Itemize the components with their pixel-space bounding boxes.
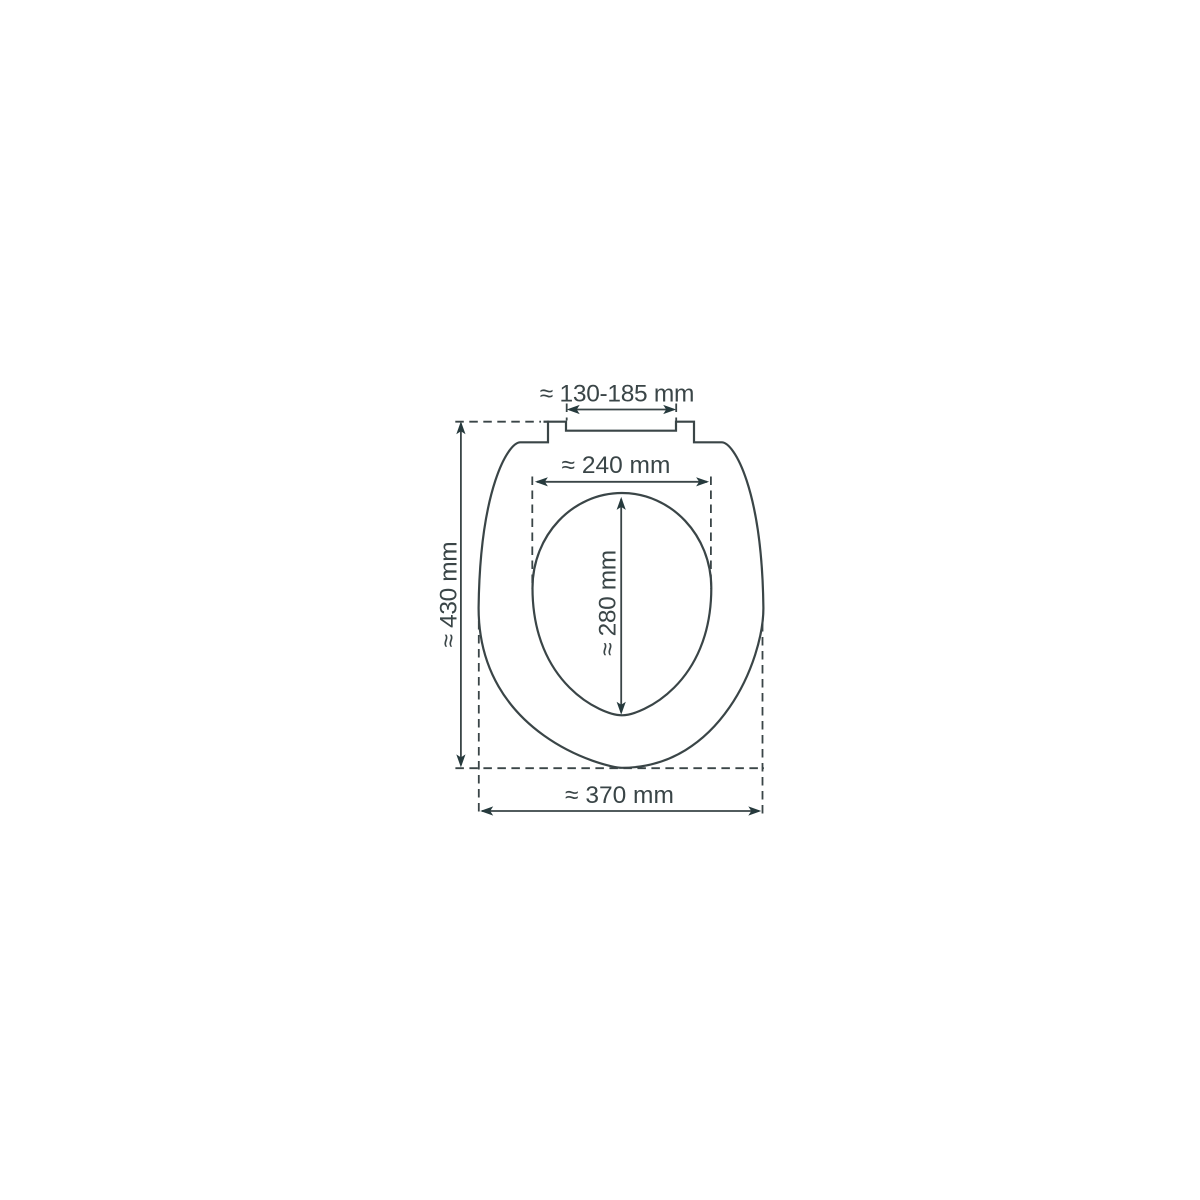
svg-text:≈ 430 mm: ≈ 430 mm [436, 542, 463, 648]
svg-text:≈ 240 mm: ≈ 240 mm [562, 452, 671, 479]
svg-text:≈ 280 mm: ≈ 280 mm [595, 550, 622, 656]
svg-text:≈ 370 mm: ≈ 370 mm [565, 782, 674, 809]
svg-text:≈ 130-185 mm: ≈ 130-185 mm [540, 381, 694, 408]
